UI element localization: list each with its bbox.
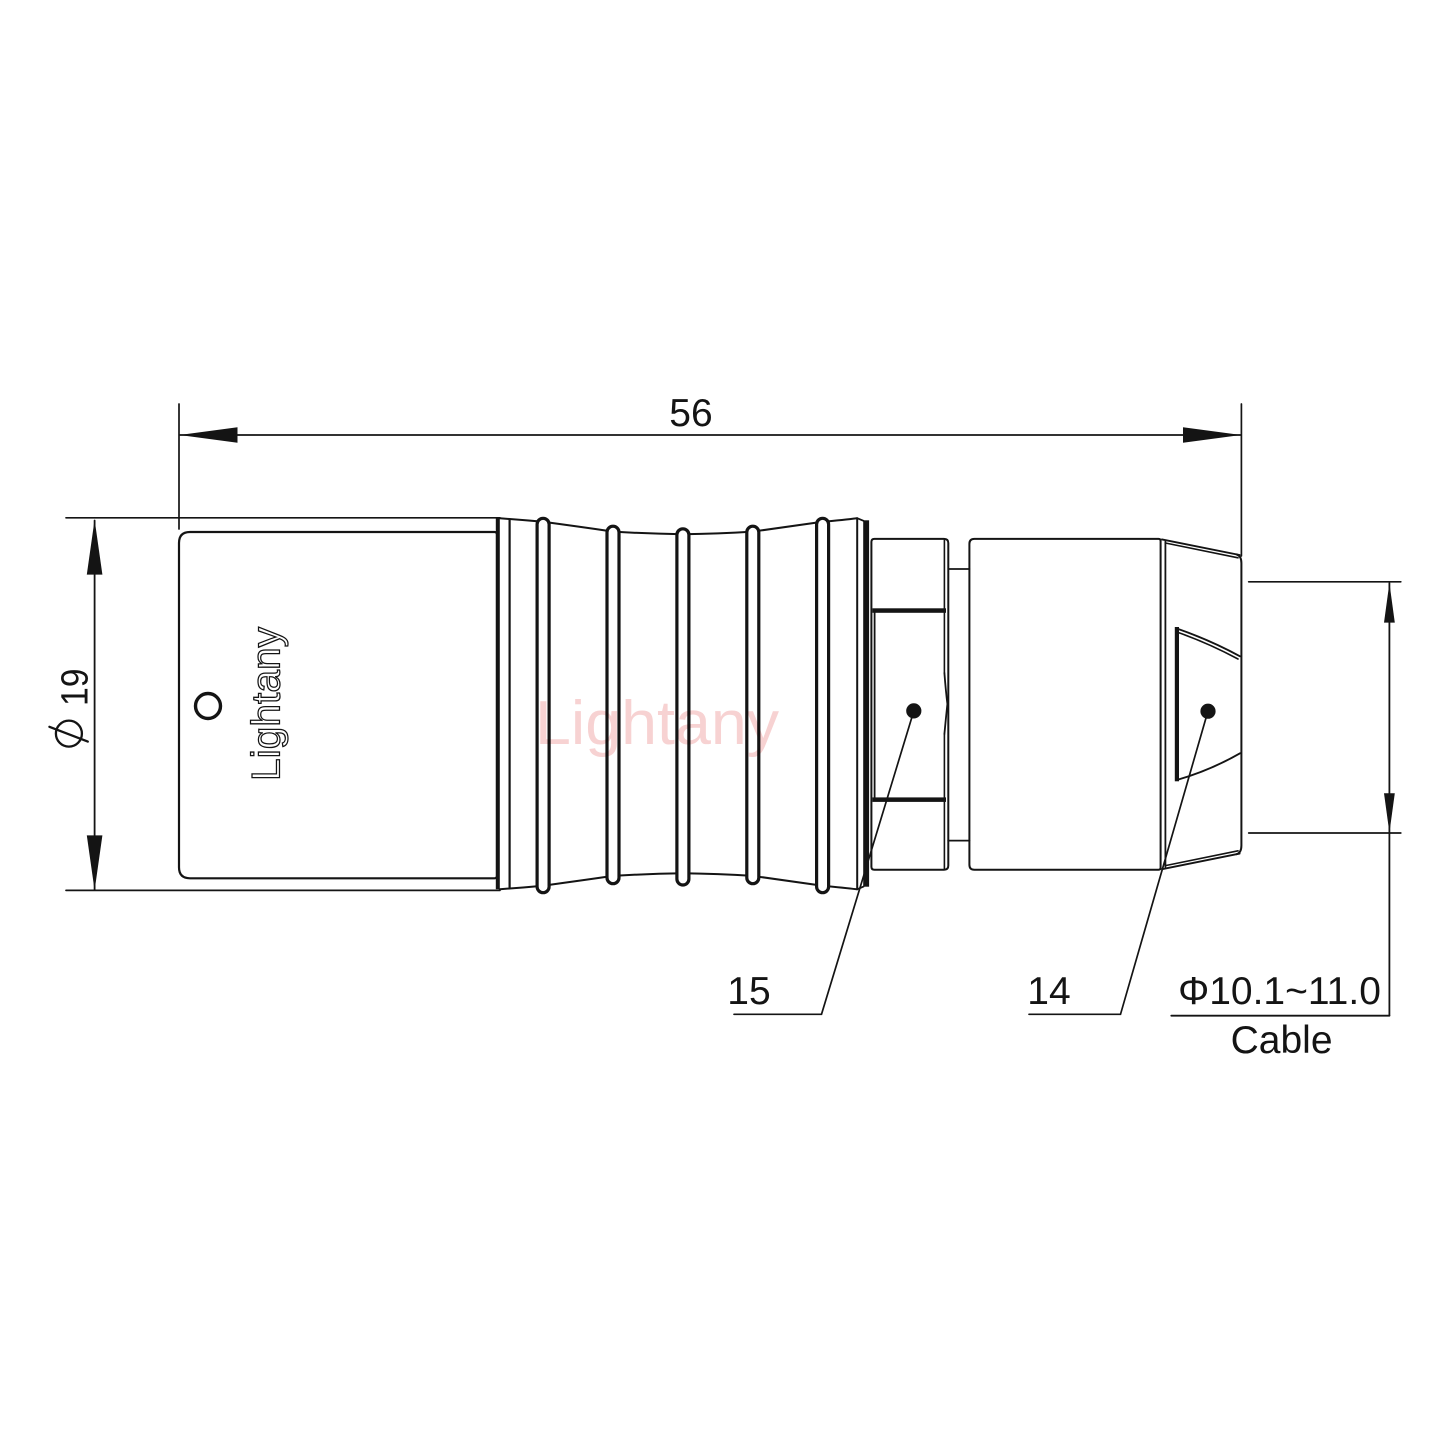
svg-text:Lightany: Lightany [245,627,289,781]
svg-text:Lightany: Lightany [535,689,779,758]
svg-text:14: 14 [1027,970,1070,1013]
svg-text:Φ10.1~11.0: Φ10.1~11.0 [1178,970,1381,1013]
svg-text:Cable: Cable [1231,1019,1333,1062]
svg-text:56: 56 [669,392,712,435]
svg-text:19: 19 [55,669,97,707]
svg-text:15: 15 [727,970,770,1013]
